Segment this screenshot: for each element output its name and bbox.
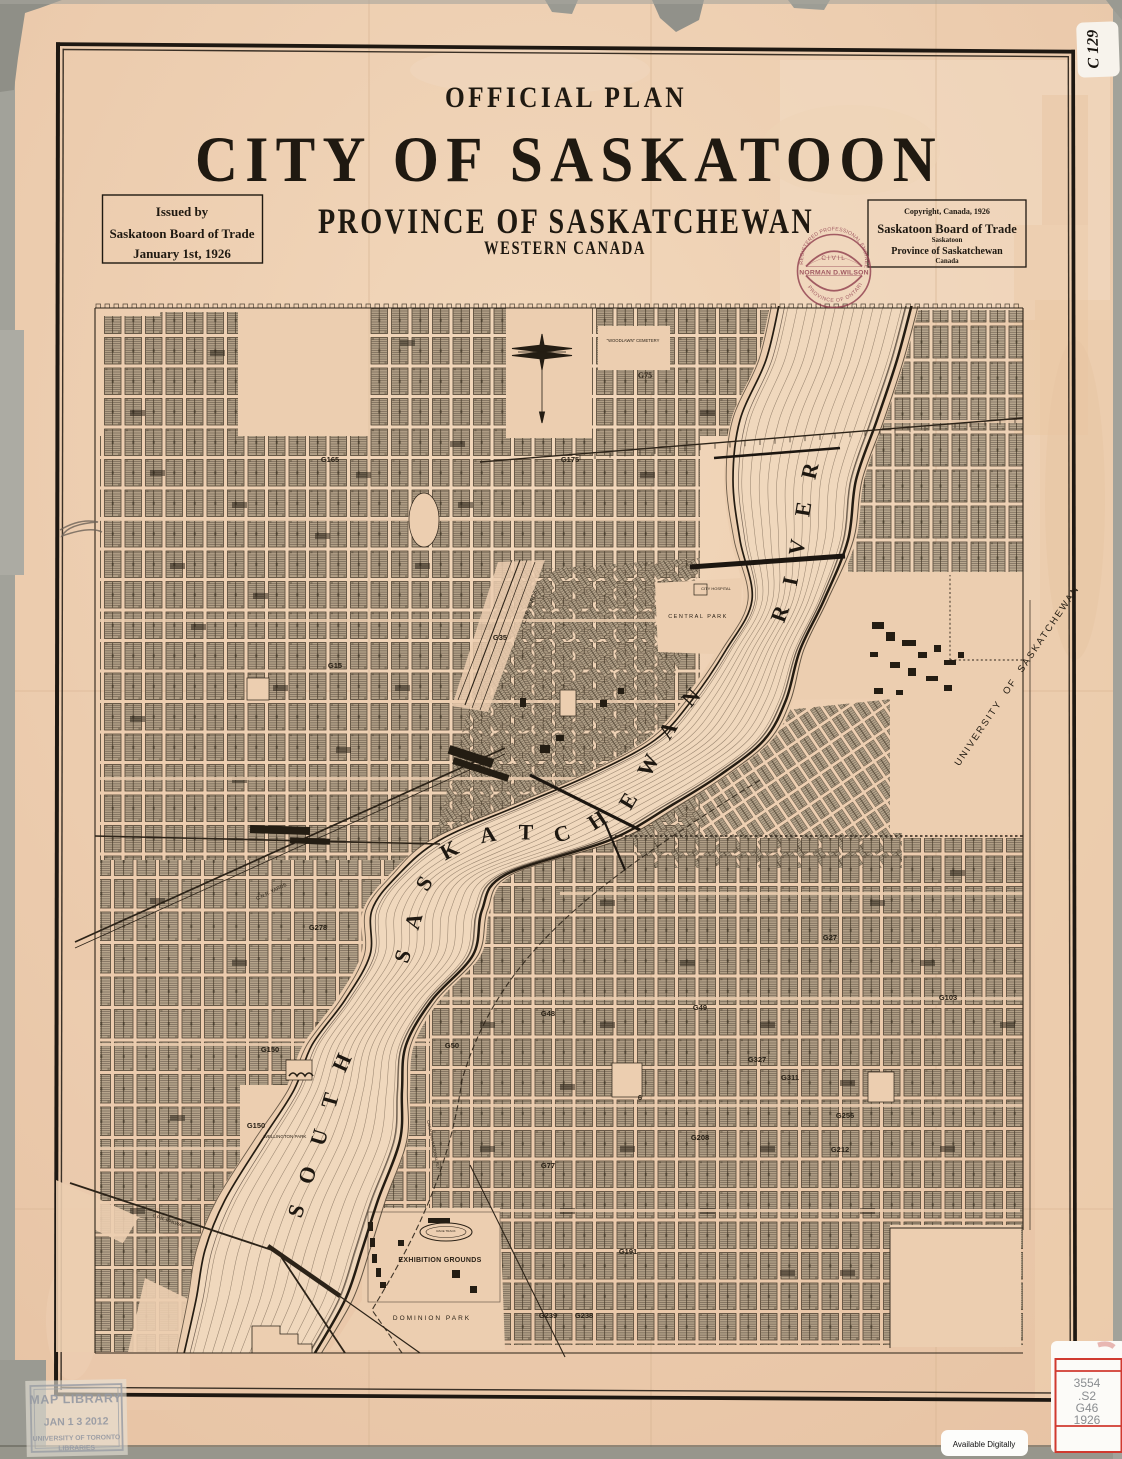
svg-text:Canada: Canada bbox=[935, 257, 959, 265]
svg-text:G75: G75 bbox=[638, 371, 652, 380]
svg-text:G150: G150 bbox=[247, 1121, 265, 1130]
svg-text:OFFICIAL PLAN: OFFICIAL PLAN bbox=[445, 81, 687, 114]
svg-text:DOMINION PARK: DOMINION PARK bbox=[393, 1315, 471, 1322]
svg-text:G103: G103 bbox=[939, 993, 957, 1002]
svg-text:G15: G15 bbox=[328, 661, 342, 670]
svg-text:MAP LIBRARY: MAP LIBRARY bbox=[29, 1391, 122, 1407]
svg-text:C 129: C 129 bbox=[1084, 30, 1102, 69]
svg-text:G191: G191 bbox=[619, 1247, 637, 1256]
svg-text:CITY HOSPITAL: CITY HOSPITAL bbox=[701, 586, 731, 591]
svg-text:G35: G35 bbox=[493, 633, 507, 642]
svg-text:January 1st, 1926: January 1st, 1926 bbox=[133, 246, 231, 261]
svg-text:RACE TRACK: RACE TRACK bbox=[436, 1229, 455, 1233]
svg-text:PROVINCE OF SASKATCHEWAN: PROVINCE OF SASKATCHEWAN bbox=[318, 201, 814, 241]
svg-text:G327: G327 bbox=[748, 1055, 766, 1064]
svg-text:G239: G239 bbox=[539, 1311, 557, 1320]
svg-text:G278: G278 bbox=[309, 923, 327, 932]
svg-text:G238: G238 bbox=[575, 1311, 593, 1320]
svg-text:G175: G175 bbox=[561, 455, 579, 464]
svg-text:G77: G77 bbox=[541, 1161, 555, 1170]
svg-text:G165: G165 bbox=[321, 455, 339, 464]
svg-text:Saskatoon Board of Trade: Saskatoon Board of Trade bbox=[109, 226, 254, 241]
svg-text:G150: G150 bbox=[261, 1045, 279, 1054]
svg-text:WELLINGTON PARK: WELLINGTON PARK bbox=[264, 1134, 307, 1139]
svg-text:G27: G27 bbox=[823, 933, 837, 942]
svg-text:G311: G311 bbox=[781, 1073, 799, 1082]
svg-text:CITY OF SASKATOON: CITY OF SASKATOON bbox=[195, 124, 943, 196]
svg-text:"WOODLAWN" CEMETERY: "WOODLAWN" CEMETERY bbox=[607, 338, 660, 343]
svg-text:JAN 1 3 2012: JAN 1 3 2012 bbox=[44, 1415, 109, 1428]
svg-text:1926: 1926 bbox=[1074, 1413, 1101, 1427]
svg-text:WESTERN CANADA: WESTERN CANADA bbox=[484, 239, 646, 259]
svg-text:G49: G49 bbox=[693, 1003, 707, 1012]
svg-text:G48: G48 bbox=[541, 1009, 555, 1018]
svg-text:3554: 3554 bbox=[1074, 1376, 1101, 1390]
svg-text:Copyright, Canada, 1926: Copyright, Canada, 1926 bbox=[904, 207, 990, 216]
svg-text:Saskatoon Board of Trade: Saskatoon Board of Trade bbox=[877, 222, 1017, 236]
svg-text:EXHIBITION GROUNDS: EXHIBITION GROUNDS bbox=[398, 1257, 481, 1264]
svg-text:Available Digitally: Available Digitally bbox=[953, 1440, 1016, 1449]
svg-text:Issued by: Issued by bbox=[156, 204, 209, 219]
svg-text:6: 6 bbox=[638, 1093, 642, 1102]
svg-text:Saskatoon: Saskatoon bbox=[932, 236, 963, 244]
svg-text:CENTRAL PARK: CENTRAL PARK bbox=[668, 614, 728, 620]
svg-text:CIVIL: CIVIL bbox=[821, 255, 846, 262]
svg-text:NORMAN D.WILSON: NORMAN D.WILSON bbox=[799, 270, 868, 277]
svg-text:G212: G212 bbox=[831, 1145, 849, 1154]
svg-text:Province of Saskatchewan: Province of Saskatchewan bbox=[891, 246, 1003, 257]
svg-text:G208: G208 bbox=[691, 1133, 709, 1142]
svg-text:LIBRARIES: LIBRARIES bbox=[58, 1445, 95, 1453]
svg-text:G256: G256 bbox=[836, 1111, 854, 1120]
svg-text:G50: G50 bbox=[445, 1041, 459, 1050]
